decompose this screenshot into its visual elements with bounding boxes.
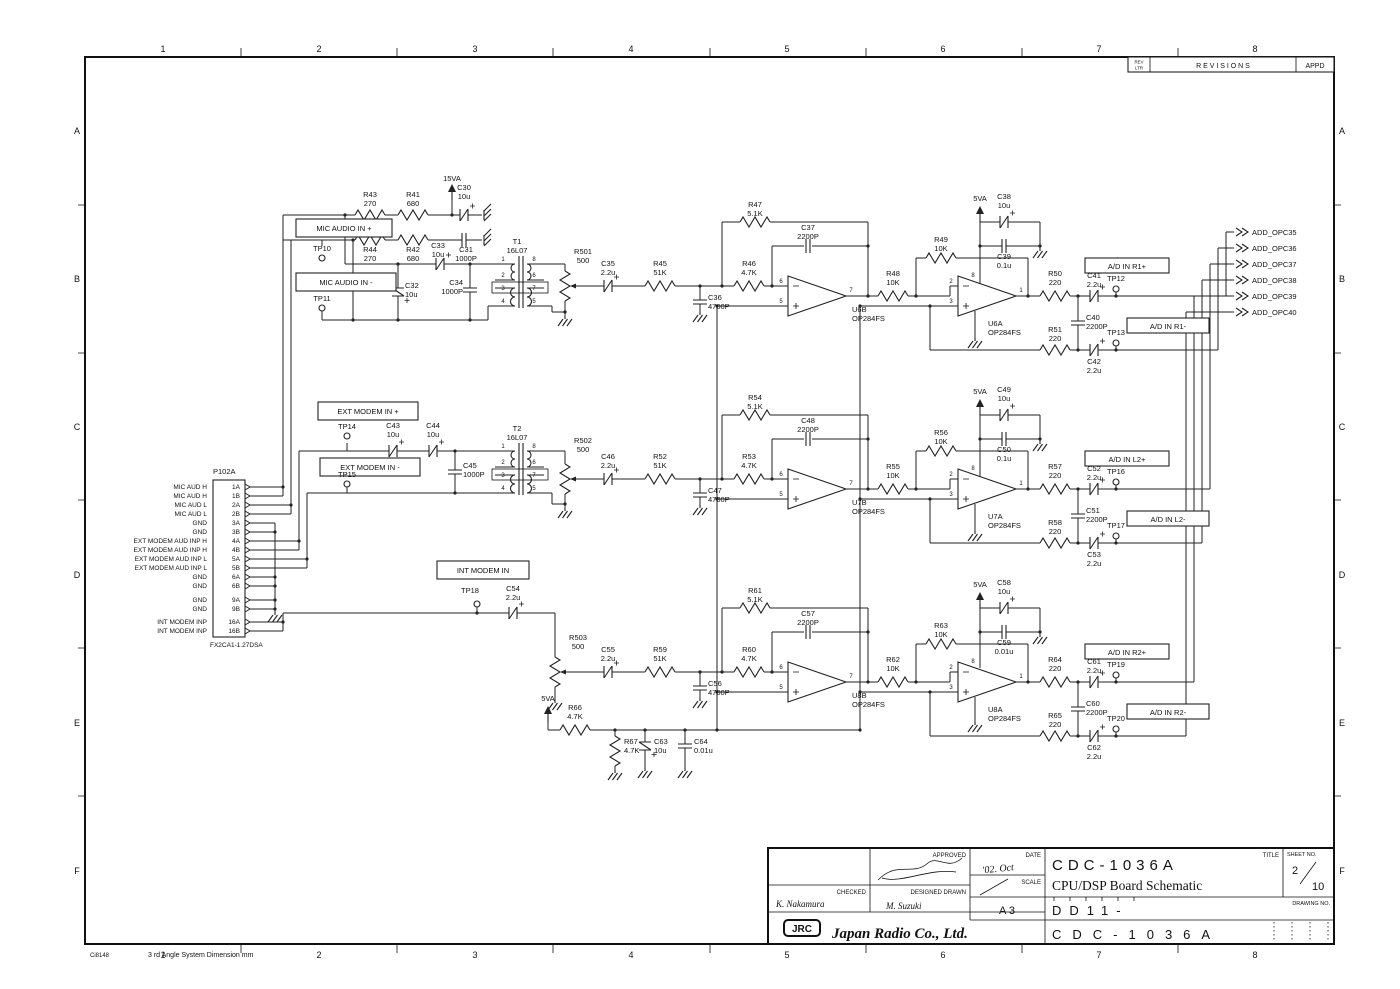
resistor-R53	[734, 474, 764, 484]
capacitor-C48	[806, 432, 810, 446]
revisions-title: R E V I S I O N S	[1196, 63, 1250, 70]
label-R54: R545.1K	[747, 393, 762, 411]
label-C52: C522.2u	[1087, 464, 1102, 482]
power-arrow-15va	[448, 184, 456, 200]
output-net-label: ADD_OPC39	[1252, 292, 1297, 301]
pin-label: GND	[193, 597, 208, 604]
footer-code: Ci8148	[90, 953, 110, 959]
pin-label: GND	[193, 574, 208, 581]
pin-number: 6A	[232, 574, 241, 581]
label-C48: C482200P	[797, 416, 819, 434]
resistor-R57	[1040, 484, 1070, 494]
xf-pin: 7	[532, 473, 536, 479]
output-net-label: ADD_OPC38	[1252, 276, 1297, 285]
label-R44: R44270	[363, 245, 377, 263]
resistor-R67	[610, 736, 620, 766]
drawn-signature: M. Suzuki	[885, 901, 922, 911]
capacitor-C36	[693, 300, 707, 304]
ground-symbol	[638, 768, 652, 778]
designed-drawn-label: DESIGNED DRAWN	[911, 890, 966, 896]
opamp-pin: 7	[849, 674, 853, 680]
pin-number: 3A	[232, 520, 241, 527]
opamp-U7A	[958, 469, 1016, 509]
potentiometer-R501	[560, 271, 570, 301]
resistor-R52	[645, 474, 675, 484]
label-R49: R4910K	[934, 235, 948, 253]
pot-wiper-arrow	[560, 670, 566, 675]
resistor-R59	[645, 667, 675, 677]
testpoint-TP20	[1113, 726, 1119, 732]
flag-label: INT MODEM IN	[457, 566, 509, 575]
grid-col-label: 4	[628, 950, 633, 960]
flag-label: A/D IN L2+	[1109, 455, 1147, 464]
opamp-pin: 3	[949, 685, 953, 691]
xf-pin: 1	[501, 444, 505, 450]
power-arrow-5va	[544, 706, 552, 722]
label-C51: C512200P	[1086, 506, 1108, 524]
label-R53: R534.7K	[741, 452, 756, 470]
label-C64: C640.01u	[694, 737, 713, 755]
resistor-R49	[926, 253, 956, 263]
label-C36: C364700P	[708, 293, 730, 311]
checked-signature: K. Nakamura	[775, 899, 825, 909]
output-net-label: ADD_OPC36	[1252, 244, 1297, 253]
connector-name: P102A	[213, 467, 236, 476]
xf-pin: 2	[501, 460, 505, 466]
label-R503: R503500	[569, 633, 587, 651]
grid-col-label: 7	[1096, 950, 1101, 960]
ground-symbol	[608, 770, 622, 780]
testpoint-TP11	[319, 305, 325, 311]
output-arrow-icon	[1236, 308, 1248, 316]
opamp-pin: 7	[849, 481, 853, 487]
resistor-R54	[740, 410, 770, 420]
grid-row-label: A	[1339, 126, 1345, 136]
capacitor-C37	[806, 239, 810, 253]
output-arrow-icon	[1236, 260, 1248, 268]
label-C46: C462.2u	[601, 452, 616, 470]
capacitor-C47	[693, 493, 707, 497]
opamp-input-signs	[963, 479, 969, 502]
ground-symbol	[693, 312, 707, 322]
grid-col-label: 5	[784, 950, 789, 960]
label-R61: R615.1K	[747, 586, 762, 604]
grid-col-label: 2	[316, 950, 321, 960]
tp-label: TP13	[1107, 328, 1125, 337]
sheet-total: 10	[1312, 881, 1324, 893]
grid-row-label: F	[74, 866, 80, 876]
label-U8A: U8AOP284FS	[988, 705, 1021, 723]
opamp-pin: 8	[971, 659, 975, 665]
power-arrow-5va	[976, 399, 984, 415]
xf-pin: 4	[501, 299, 505, 305]
grid-col-label: 8	[1252, 950, 1257, 960]
revisions-table: REV LTR R E V I S I O N S APPD	[1128, 57, 1334, 72]
grid-row-label: B	[74, 274, 80, 284]
xf-pin: 5	[532, 299, 536, 305]
label-C57: C572200P	[797, 609, 819, 627]
pin-number: 9B	[232, 606, 240, 613]
grid-row-label: C	[74, 422, 81, 432]
pin-number: 5B	[232, 565, 240, 572]
output-arrow-icon	[1236, 244, 1248, 252]
opamp-pin: 8	[971, 466, 975, 472]
pin-number: 5A	[232, 556, 241, 563]
opamp-U8A	[958, 662, 1016, 702]
scale-label: SCALE	[1021, 880, 1041, 886]
xf-pin: 4	[501, 486, 505, 492]
pin-number: 9A	[232, 597, 241, 604]
label-R65: R65220	[1048, 711, 1062, 729]
output-net-label: ADD_OPC40	[1252, 308, 1297, 317]
flag-label: A/D IN R1-	[1150, 322, 1187, 331]
opamp-pin: 5	[779, 685, 783, 691]
tp-label: TP19	[1107, 660, 1125, 669]
company-name: Japan Radio Co., Ltd.	[831, 926, 968, 942]
opamp-pin: 1	[1019, 674, 1023, 680]
capacitor-C45	[448, 470, 462, 474]
ground-symbol	[678, 768, 692, 778]
grid-row-label: D	[74, 570, 81, 580]
rev-ltr-label: LTR	[1135, 66, 1143, 71]
pin-label: MIC AUD H	[173, 493, 207, 500]
label-C53: C532.2u	[1087, 550, 1102, 568]
label-T2: T216L07	[507, 424, 528, 442]
grid-col-label: 8	[1252, 44, 1257, 54]
flag-label: A/D IN R1+	[1108, 262, 1147, 271]
pin-number: 16A	[228, 619, 240, 626]
xf-pin: 3	[501, 473, 505, 479]
flag-label: MIC AUDIO IN -	[319, 278, 373, 287]
capacitor-C46	[604, 468, 619, 486]
chassis-symbol	[484, 204, 491, 221]
label-R55: R5510K	[886, 462, 900, 480]
grid-row-label: B	[1339, 274, 1345, 284]
grid-col-label: 3	[472, 950, 477, 960]
flag-label: A/D IN L2-	[1150, 515, 1186, 524]
pin-number: 2B	[232, 511, 240, 518]
xf-pin: 7	[532, 286, 536, 292]
ground-symbol	[1033, 634, 1047, 644]
grid-row-label: A	[74, 126, 80, 136]
capacitor-C38	[1000, 211, 1015, 229]
tp-label: TP17	[1107, 521, 1125, 530]
label-C31: C311000P	[455, 245, 477, 263]
testpoint-TP18	[474, 601, 480, 607]
label-R51: R51220	[1048, 325, 1062, 343]
grid-col-label: 5	[784, 44, 789, 54]
resistor-R42	[398, 235, 428, 245]
pin-number: 4A	[232, 538, 241, 545]
testpoint-TP19	[1113, 672, 1119, 678]
sheet-number: 2	[1292, 865, 1298, 877]
resistor-R41	[398, 210, 428, 220]
label-R57: R57220	[1048, 462, 1062, 480]
capacitor-C50	[1002, 432, 1006, 446]
date-value: '02. Oct	[982, 862, 1015, 876]
net-label-5va: 5VA	[973, 580, 987, 589]
label-R64: R64220	[1048, 655, 1062, 673]
capacitor-C40	[1071, 321, 1085, 325]
net-label-5va: 5VA	[541, 694, 555, 703]
capacitor-C59	[1002, 625, 1006, 639]
capacitor-C43	[389, 440, 404, 458]
opamp-input-signs	[793, 479, 799, 502]
resistor-R48	[878, 291, 908, 301]
label-R41: R41680	[406, 190, 420, 208]
ground-symbol	[558, 316, 572, 326]
label-R45: R4551K	[653, 259, 667, 277]
label-C32: C3210u	[405, 281, 419, 299]
approved-label: APPROVED	[933, 853, 967, 859]
approved-signature	[878, 858, 962, 880]
resistor-R45	[645, 281, 675, 291]
pin-label: GND	[193, 583, 208, 590]
grid-row-label: C	[1339, 422, 1346, 432]
capacitor-C64	[678, 744, 692, 748]
label-R60: R604.7K	[741, 645, 756, 663]
grid-row-label: F	[1339, 866, 1345, 876]
pin-number: 4B	[232, 547, 240, 554]
resistor-R65	[1040, 731, 1070, 741]
capacitor-C35	[604, 275, 619, 293]
drawing-prefix: DD11-	[1052, 903, 1129, 918]
drawing-number: CDC-1036A	[1052, 927, 1221, 942]
xf-pin: 1	[501, 257, 505, 263]
capacitor-C56	[693, 686, 707, 690]
capacitor-C60	[1071, 707, 1085, 711]
tp-label: TP18	[461, 586, 479, 595]
label-R43: R43270	[363, 190, 377, 208]
xf-pin: 5	[532, 486, 536, 492]
grid-row-label: E	[74, 718, 80, 728]
title-label: TITLE	[1263, 853, 1279, 859]
footer-note: 3 rd Angle System Dimension mm	[148, 952, 254, 959]
label-C44: C4410u	[426, 421, 440, 439]
pot-wiper-arrow	[570, 477, 576, 482]
resistor-R46	[734, 281, 764, 291]
label-C34: C341000P	[441, 278, 463, 296]
capacitor-C30	[460, 204, 475, 222]
testpoint-TP16	[1113, 479, 1119, 485]
net-label-5va: 5VA	[973, 387, 987, 396]
pin-label: GND	[193, 606, 208, 613]
pin-label: EXT MODEM AUD INP H	[134, 538, 208, 545]
grid-col-label: 3	[472, 44, 477, 54]
chassis-symbol	[484, 229, 491, 246]
ground-symbol	[968, 338, 982, 348]
sheet-footer: Ci8148 3 rd Angle System Dimension mm	[90, 952, 254, 959]
opamp-pin: 3	[949, 299, 953, 305]
potentiometer-R502	[560, 464, 570, 494]
schematic-page: 1 2 3 4 5 6 7 8 1 2 3 4 5 6 7 8 A B C D …	[0, 0, 1400, 989]
pin-number: 2A	[232, 502, 241, 509]
ground-symbol	[1033, 248, 1047, 258]
grid-col-label: 6	[940, 44, 945, 54]
connector-p102a: P102A FX2CA1-1.27DSA 1A 1B 2A 2B 3A 3B 4…	[134, 215, 307, 649]
net-label-5va: 5VA	[973, 194, 987, 203]
tp-label: TP10	[313, 244, 331, 253]
label-C59: C590.01u	[995, 638, 1014, 656]
grid-col-label: 1	[160, 44, 165, 54]
label-C61: C612.2u	[1087, 657, 1102, 675]
resistor-R56	[926, 446, 956, 456]
tp-label: TP16	[1107, 467, 1125, 476]
potentiometer-R503	[550, 657, 560, 687]
resistor-R60	[734, 667, 764, 677]
capacitor-C54	[509, 602, 524, 620]
opamp-pin: 5	[779, 492, 783, 498]
power-arrow-5va	[976, 206, 984, 222]
label-C38: C3810u	[997, 192, 1011, 210]
capacitor-C53	[1090, 532, 1105, 550]
schematic-canvas: 1 2 3 4 5 6 7 8 1 2 3 4 5 6 7 8 A B C D …	[0, 0, 1400, 989]
label-C39: C390.1u	[997, 252, 1012, 270]
ground-symbol	[268, 612, 282, 622]
label-R66: R664.7K	[567, 703, 582, 721]
pin-label: MIC AUD L	[174, 502, 207, 509]
ground-symbol	[693, 505, 707, 515]
label-R67: R674.7K	[624, 737, 639, 755]
opamp-pin: 6	[779, 665, 783, 671]
capacitor-C34	[463, 288, 477, 292]
title-block: APPROVED DATE '02. Oct SCALE CHECKED DES…	[768, 848, 1334, 944]
offpage-outputs: ADD_OPC35 ADD_OPC36 ADD_OPC37 ADD_OPC38 …	[1236, 228, 1297, 317]
label-R50: R50220	[1048, 269, 1062, 287]
label-C56: C564700P	[708, 679, 730, 697]
flag-label: MIC AUDIO IN +	[316, 224, 372, 233]
label-R63: R6310K	[934, 621, 948, 639]
label-R47: R475.1K	[747, 200, 762, 218]
component-labels: R43270 R41680 C3010u R44270 R42680 C3110…	[363, 183, 1108, 761]
document-title: CPU/DSP Board Schematic	[1052, 878, 1202, 893]
opamp-input-signs	[793, 286, 799, 309]
model-number: CDC-1036A	[1052, 857, 1178, 874]
xf-pin: 8	[532, 257, 536, 263]
opamp-pin: 1	[1019, 288, 1023, 294]
label-R46: R464.7K	[741, 259, 756, 277]
capacitor-C62	[1090, 725, 1105, 743]
pin-number: 3B	[232, 529, 240, 536]
opamp-pin: 7	[849, 288, 853, 294]
opamp-pin: 6	[779, 279, 783, 285]
label-R62: R6210K	[886, 655, 900, 673]
capacitor-C42	[1090, 339, 1105, 357]
label-R56: R5610K	[934, 428, 948, 446]
label-C45: C451000P	[463, 461, 485, 479]
opamp-pin: 8	[971, 273, 975, 279]
pin-number: 6B	[232, 583, 240, 590]
net-label-15va: 15VA	[443, 174, 461, 183]
rev-ltr-label: REV	[1134, 60, 1143, 65]
flag-label: EXT MODEM IN +	[337, 407, 399, 416]
opamp-input-signs	[963, 672, 969, 695]
capacitor-C58	[1000, 597, 1015, 615]
label-U7B: U7BOP284FS	[852, 498, 885, 516]
resistor-R51	[1040, 345, 1070, 355]
label-R48: R4810K	[886, 269, 900, 287]
testpoint-TP10	[319, 255, 325, 261]
label-R42: R42680	[406, 245, 420, 263]
opamp-U8B	[788, 662, 846, 702]
pin-label: GND	[193, 520, 208, 527]
label-C40: C402200P	[1086, 313, 1108, 331]
label-C37: C372200P	[797, 223, 819, 241]
pin-label: EXT MODEM AUD INP L	[135, 565, 208, 572]
xf-pin: 2	[501, 273, 505, 279]
label-U6A: U6AOP284FS	[988, 319, 1021, 337]
capacitor-C57	[806, 625, 810, 639]
testpoint-TP15	[344, 481, 350, 487]
pin-number: 1A	[232, 484, 241, 491]
ground-symbol	[968, 531, 982, 541]
label-C33: C3310u	[431, 241, 445, 259]
grid-col-label: 2	[316, 44, 321, 54]
appd-label: APPD	[1305, 63, 1324, 70]
grid-col-label: 6	[940, 950, 945, 960]
resistor-R50	[1040, 291, 1070, 301]
testpoint-TP14	[344, 433, 350, 439]
flag-label: A/D IN R2+	[1108, 648, 1147, 657]
label-C58: C5810u	[997, 578, 1011, 596]
capacitor-C44	[429, 440, 444, 458]
label-C35: C352.2u	[601, 259, 616, 277]
label-C47: C474700P	[708, 486, 730, 504]
label-C55: C552.2u	[601, 645, 616, 663]
label-T1: T116L07	[507, 237, 528, 255]
opamp-pin: 6	[779, 472, 783, 478]
resistor-R58	[1040, 538, 1070, 548]
resistor-R61	[740, 603, 770, 613]
ground-symbol	[558, 508, 572, 518]
checked-label: CHECKED	[837, 890, 867, 896]
grid-col-label: 7	[1096, 44, 1101, 54]
capacitor-C49	[1000, 404, 1015, 422]
capacitor-C39	[1002, 239, 1006, 253]
label-C42: C422.2u	[1087, 357, 1102, 375]
capacitor-C51	[1071, 514, 1085, 518]
opamp-pin: 3	[949, 492, 953, 498]
tp-label: TP15	[338, 470, 356, 479]
opamp-U6A	[958, 276, 1016, 316]
label-R502: R502500	[574, 436, 592, 454]
opamp-pin: 5	[779, 299, 783, 305]
testpoint-TP13	[1113, 340, 1119, 346]
ground-symbol	[1033, 441, 1047, 451]
label-U6B: U6BOP284FS	[852, 305, 885, 323]
output-arrow-icon	[1236, 292, 1248, 300]
pin-label: GND	[193, 529, 208, 536]
label-R59: R5951K	[653, 645, 667, 663]
opamp-pin: 2	[949, 279, 953, 285]
label-C54: C542.2u	[506, 584, 521, 602]
pin-number: 16B	[228, 628, 240, 635]
resistor-R55	[878, 484, 908, 494]
capacitor-C55	[604, 661, 619, 679]
label-C62: C622.2u	[1087, 743, 1102, 761]
resistor-R66	[560, 725, 590, 735]
opamp-pin: 2	[949, 472, 953, 478]
label-C30: C3010u	[457, 183, 471, 201]
resistor-R64	[1040, 677, 1070, 687]
opamp-pin: 2	[949, 665, 953, 671]
connector-partno: FX2CA1-1.27DSA	[210, 642, 263, 649]
tp-label: TP20	[1107, 714, 1125, 723]
opamp-U7B	[788, 469, 846, 509]
output-arrow-icon	[1236, 276, 1248, 284]
output-arrow-icon	[1236, 228, 1248, 236]
sheet-no-label: SHEET NO.	[1287, 852, 1317, 858]
